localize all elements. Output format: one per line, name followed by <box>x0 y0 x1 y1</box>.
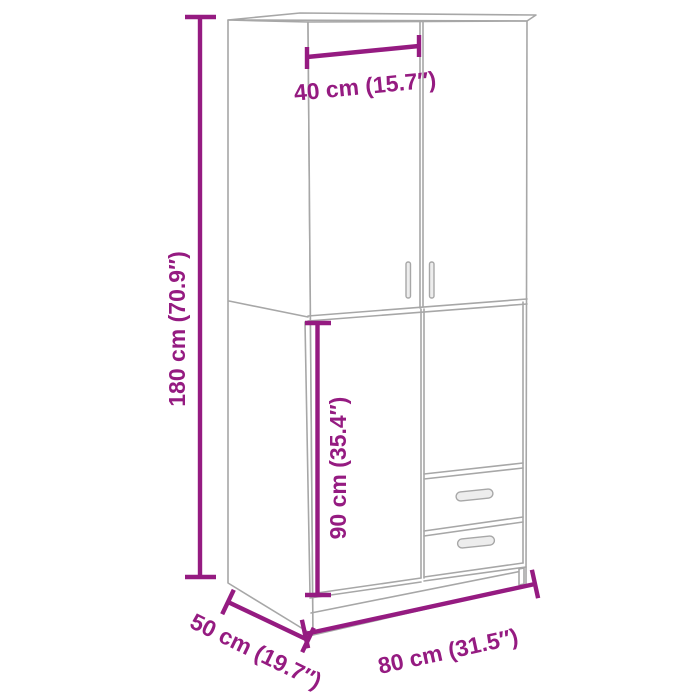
wardrobe-top-face <box>228 13 536 21</box>
wardrobe-dimension-diagram: 40 cm (15.7″) 180 cm (70.9″) 90 cm (35.4… <box>0 0 700 700</box>
dimension-height-label: 180 cm (70.9″) <box>164 251 190 407</box>
dimension-height: 180 cm (70.9″) <box>164 17 216 577</box>
wardrobe-left-side-face <box>228 20 313 635</box>
dimension-width-tick-right <box>532 570 538 598</box>
dimension-width-label: 80 cm (31.5″) <box>376 623 521 679</box>
upper-right-door-handle <box>430 262 435 298</box>
plinth-right-foot <box>519 568 524 585</box>
upper-left-door-handle <box>406 262 411 298</box>
wardrobe-drawing <box>228 13 536 635</box>
diagram-canvas: 40 cm (15.7″) 180 cm (70.9″) 90 cm (35.4… <box>0 0 700 700</box>
dimension-lower-height-label: 90 cm (35.4″) <box>325 397 351 540</box>
